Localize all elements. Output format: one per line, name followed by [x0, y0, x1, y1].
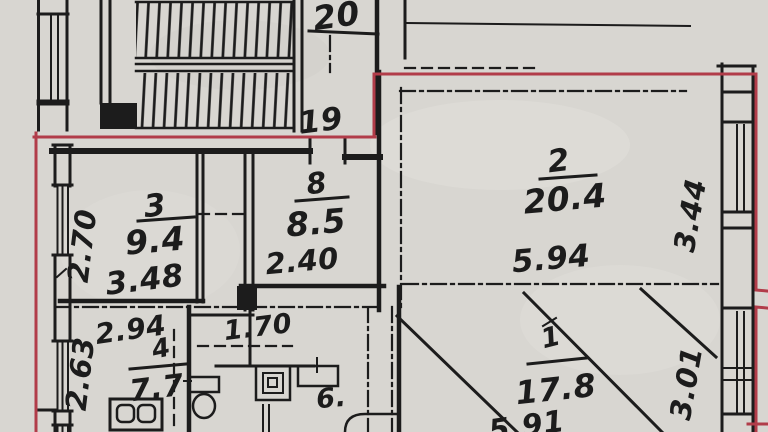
closet-wall-block [237, 286, 257, 310]
pipe-lines [263, 404, 269, 432]
room-8-width-dim: 2.40 [264, 241, 340, 281]
water-heater-coil-inner [263, 373, 283, 393]
room-2-width-dim: 5.94 [510, 238, 591, 281]
room-8-area: 8.5 [284, 201, 347, 245]
water-heater-coil-core [268, 378, 277, 387]
room-2-number: 2 [546, 142, 572, 180]
toilet-tank [189, 377, 219, 392]
room-4-number: 4 [148, 333, 173, 366]
room-2-height-dim: 3.44 [667, 176, 713, 254]
floor-plan-drawing: 20 19 3 9.4 3.48 2.70 8 8.5 2.40 2 20.4 … [0, 0, 768, 432]
floor-plan-scan: 20 19 3 9.4 3.48 2.70 8 8.5 2.40 2 20.4 … [0, 0, 768, 432]
toilet-bowl [193, 394, 215, 418]
stairwell-lower-label: 19 [297, 101, 345, 142]
room-2-area: 20.4 [522, 175, 609, 221]
stair-flight-upper [136, 2, 294, 58]
room-8-number: 8 [304, 165, 329, 202]
stair-flight-lower [136, 73, 294, 128]
room-4-area: 7.7 [128, 368, 187, 409]
room-1-width-dim: 5.91 [487, 404, 567, 432]
stair-landing-wall-block [100, 103, 137, 129]
water-heater-coil [256, 366, 290, 400]
walls-heavy [52, 151, 380, 157]
room-6-number: 6. [315, 382, 348, 416]
room-4-height-dim: 2.63 [59, 335, 102, 412]
room-3-area: 9.4 [123, 219, 186, 263]
stairwell-upper-label: 20 [310, 0, 362, 38]
